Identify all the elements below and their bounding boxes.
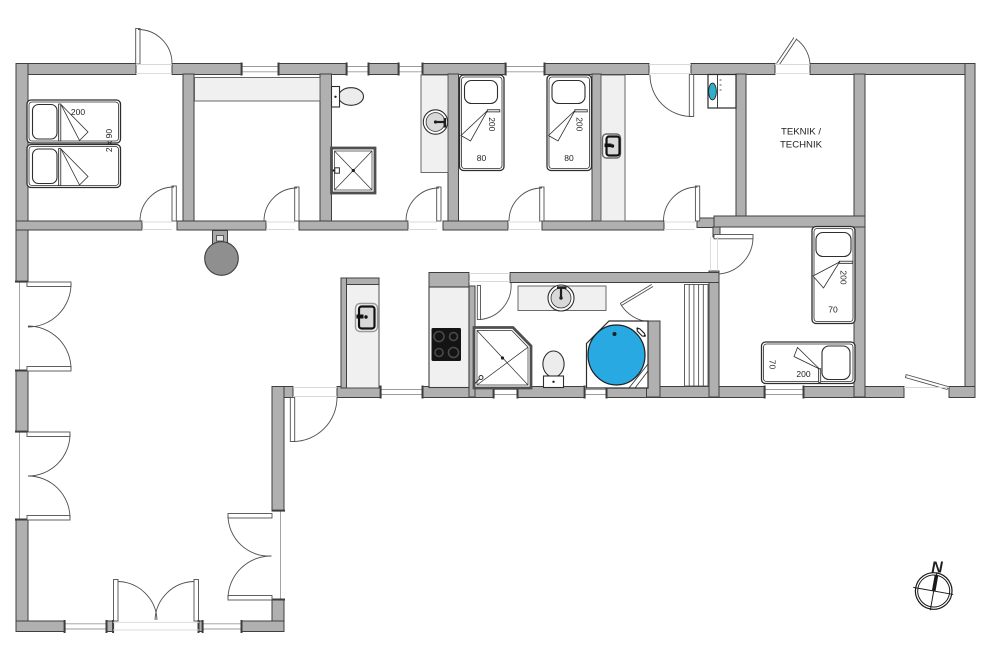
svg-text:200: 200 xyxy=(487,117,497,131)
svg-text:2 x 90: 2 x 90 xyxy=(104,129,114,152)
svg-text:200: 200 xyxy=(796,369,810,379)
svg-text:70: 70 xyxy=(768,360,778,370)
svg-text:200: 200 xyxy=(71,107,85,117)
svg-text:TEKNIK /: TEKNIK / xyxy=(781,127,821,138)
svg-text:200: 200 xyxy=(839,270,849,284)
svg-text:70: 70 xyxy=(828,305,838,315)
svg-text:80: 80 xyxy=(477,153,487,163)
svg-text:N: N xyxy=(931,560,943,577)
svg-text:80: 80 xyxy=(564,153,574,163)
svg-text:TECHNIK: TECHNIK xyxy=(780,140,823,151)
svg-text:200: 200 xyxy=(575,117,585,131)
